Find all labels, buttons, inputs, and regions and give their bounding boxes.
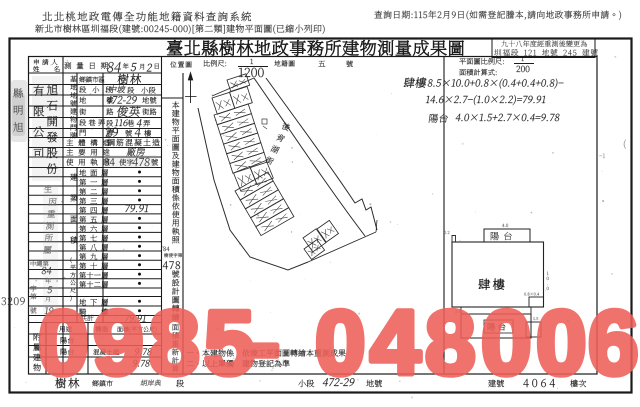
svg-text:0985-048006: 0985-048006 <box>38 293 639 394</box>
